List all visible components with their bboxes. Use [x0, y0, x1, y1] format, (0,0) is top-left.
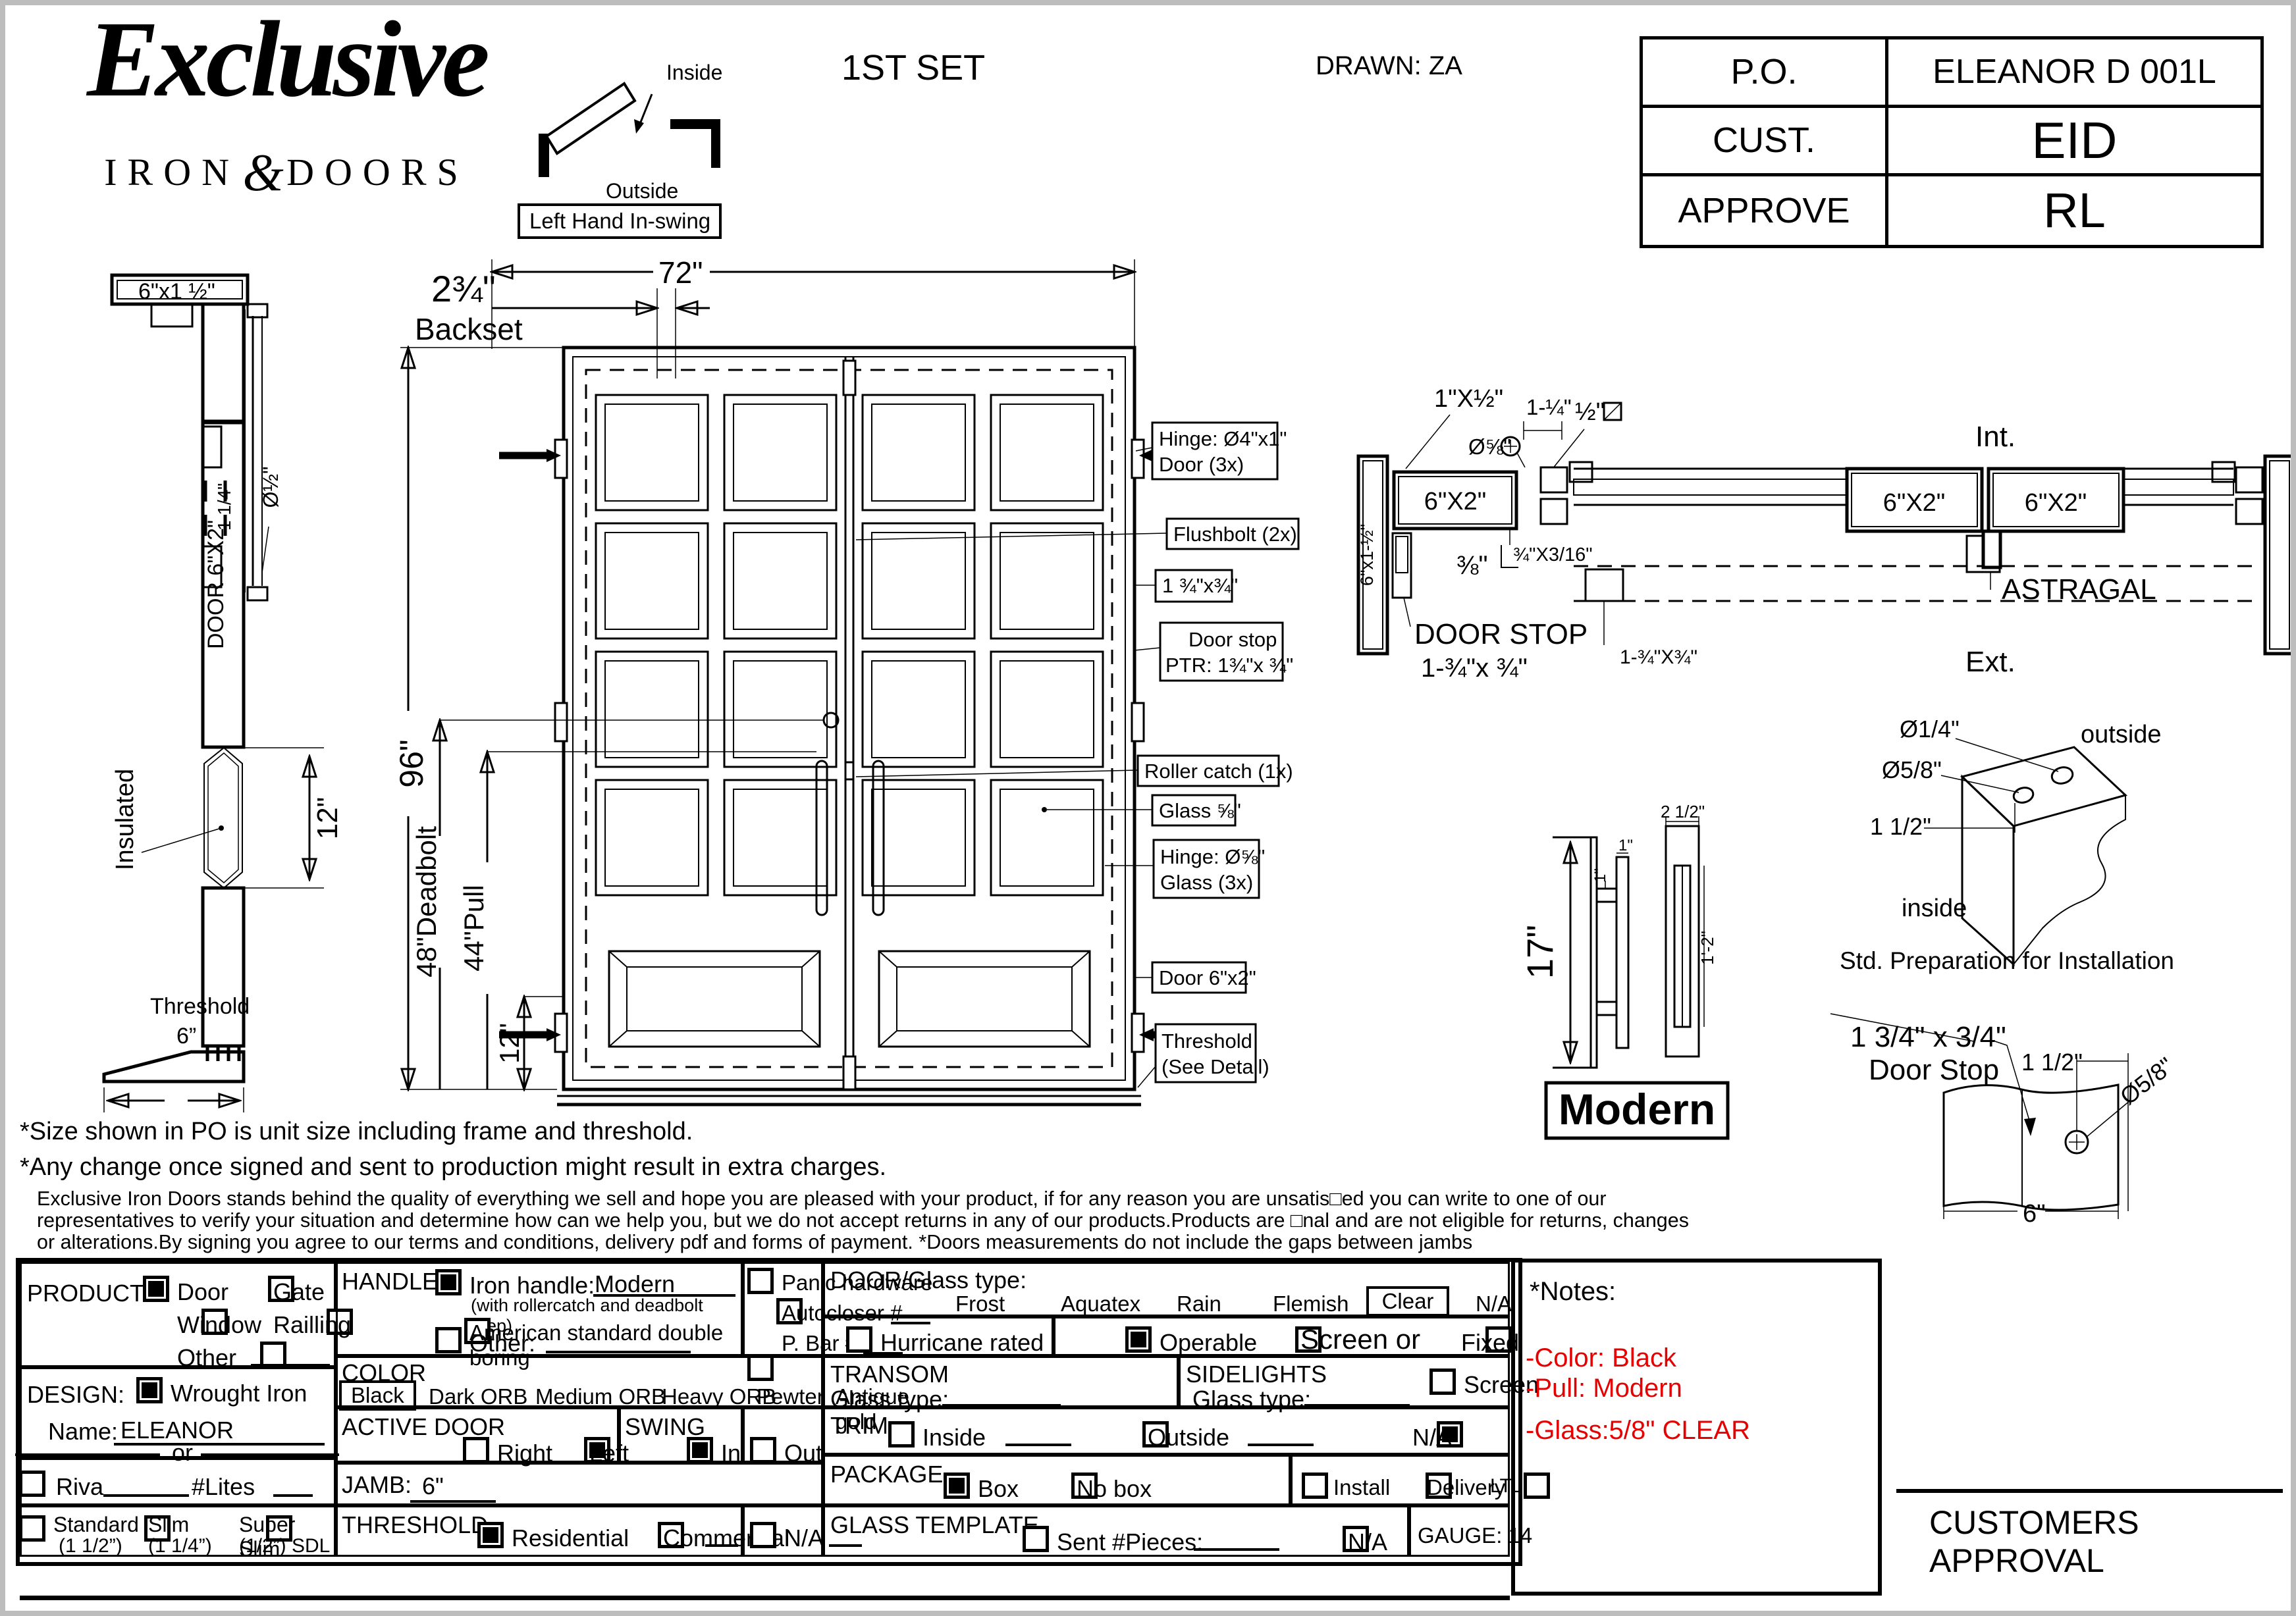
standard-sub: (1 1/2”) [59, 1535, 122, 1557]
callout-threshold-2: (See Detail) [1161, 1055, 1269, 1078]
note-para-1: Exclusive Iron Doors stands behind the q… [37, 1187, 1607, 1211]
notes-red-items: -Color: Black -Pull: Modern -Glass:5/8" … [1526, 1343, 1750, 1446]
callout-hinge-glass-1: Hinge: Ø⅝" [1160, 845, 1265, 868]
threshold-com-blank[interactable] [705, 1542, 738, 1547]
prep-caption: Std. Preparation for Installation [1840, 947, 2174, 974]
profile-glass-dia: Ø½" [259, 467, 282, 508]
checkbox-riva[interactable] [19, 1471, 45, 1497]
logo-word: Exclusive [63, 0, 510, 122]
transom-glass-blank[interactable] [942, 1401, 1061, 1407]
threshold-label: THRESHOLD [342, 1511, 488, 1539]
transom-label: TRANSOM [830, 1361, 949, 1388]
note-size: *Size shown in PO is unit size including… [20, 1118, 693, 1146]
cust-value: EID [1888, 108, 2260, 173]
slim-label: Slim [148, 1513, 189, 1537]
super-slim-sub: (1/2”) SDL [239, 1535, 330, 1557]
stopdetail-offset: 1 1/2" [2021, 1049, 2083, 1076]
prep-inside-label: inside [1902, 895, 1967, 922]
checkbox-sidelights-screen[interactable] [1429, 1368, 1456, 1395]
note-para-2: representatives to verify your situation… [37, 1209, 1689, 1232]
plan-head-dim: 6"X2" [1424, 488, 1487, 515]
design-name-blank[interactable] [114, 1440, 325, 1446]
lites-label: #Lites [192, 1473, 255, 1501]
product-other-blank[interactable] [251, 1361, 330, 1367]
install-label: Install [1333, 1475, 1390, 1500]
checkbox-handle-other[interactable] [435, 1327, 462, 1353]
notes-title: *Notes: [1530, 1277, 1616, 1307]
trim-inside-blank[interactable] [1005, 1441, 1071, 1446]
glass-na[interactable]: N/A [1476, 1291, 1512, 1316]
handle-one-b: 1" [1618, 837, 1633, 854]
company-logo: Exclusive IRON & DOORS [63, 16, 510, 194]
plan-stop-dim: 1-¾"X¾" [1620, 646, 1697, 668]
design-label: DESIGN: [27, 1381, 124, 1409]
color-black-option[interactable]: Black [339, 1380, 416, 1411]
trim-section: TRIM Inside Outside N/A [823, 1407, 1510, 1455]
trim-outside-blank[interactable] [1248, 1441, 1314, 1446]
riva-blank[interactable] [103, 1492, 189, 1497]
stopdetail-dim: 1 3/4" x 3/4" [1850, 1021, 2006, 1053]
color-medium-orb[interactable]: Medium ORB [535, 1384, 666, 1409]
plan-half: ½" [1575, 398, 1605, 426]
threshold-section: THRESHOLD Residential Commercial [336, 1505, 743, 1557]
checkbox-swing-in[interactable] [687, 1437, 713, 1463]
threshold-na-cell: N/A [743, 1505, 823, 1557]
elevation-drawing: 72" 2¾" Backset [395, 250, 1330, 1119]
design-name-label: Name: [48, 1418, 118, 1446]
trim-outside-label: Outside [1148, 1424, 1229, 1451]
callout-door-dim: Door 6"x2" [1159, 966, 1256, 989]
note-glass: -Glass:5/8" CLEAR [1526, 1415, 1750, 1446]
package-box-label: Box [978, 1475, 1019, 1503]
sidelights-label: SIDELIGHTS [1186, 1361, 1327, 1388]
profile-12-dim: 12" [311, 797, 344, 840]
handle-one-a: 1" [1591, 868, 1609, 883]
gauge-cell: GAUGE: 14 [1409, 1505, 1510, 1557]
checkbox-box[interactable] [944, 1473, 970, 1499]
handle-other-blank[interactable] [546, 1348, 691, 1353]
prep-offset: 1 1/2" [1870, 813, 1931, 840]
lites-blank[interactable] [273, 1492, 313, 1497]
po-value: ELEANOR D 001L [1888, 39, 2260, 105]
riva-section: Riva #Lites [20, 1458, 336, 1505]
profile-head-dim: 6"x1 ½" [138, 279, 215, 304]
drawn-by: DRAWN: ZA [1316, 51, 1462, 81]
glass-clear-selected[interactable]: Clear [1366, 1286, 1449, 1316]
operable-cell: Operable Screen or Fixed [1054, 1316, 1510, 1356]
handle-detail-drawing: 17" 1" 1" 2 1/2" 1'-2" Modern [1534, 810, 1765, 1172]
profile-door-label: DOOR 6"X2" [203, 520, 228, 649]
product-door-label: Door [177, 1278, 228, 1306]
product-section: PRODUCT: Door Gate Window Railling Other [20, 1262, 336, 1367]
approval-label: CUSTOMERS APPROVAL [1929, 1503, 2296, 1580]
threshold-res-label: Residential [512, 1525, 629, 1552]
doorstop-detail-drawing: 1 3/4" x 3/4" Door Stop 1 1/2" Ø5/8" 6" [1830, 1014, 2186, 1244]
plan-strip-dim: ¾"X3/16" [1513, 544, 1593, 565]
cust-label: CUST. [1643, 108, 1888, 173]
color-dark-orb[interactable]: Dark ORB [429, 1384, 527, 1409]
glass-rain[interactable]: Rain [1177, 1291, 1221, 1316]
sent-pieces-label: Sent #Pieces: [1057, 1528, 1203, 1556]
jamb-blank [410, 1498, 496, 1503]
product-label: PRODUCT: [27, 1280, 148, 1307]
checkbox-swing-out[interactable] [750, 1437, 776, 1463]
elevation-12-dim: 12" [494, 1023, 525, 1064]
plan-doorstop-dim: 1-¾"x ¾" [1421, 654, 1528, 683]
profile-threshold-label: Threshold [150, 994, 250, 1019]
plan-astragal-label: ASTRAGAL [2002, 573, 2156, 606]
color-section: COLOR Black Dark ORB Medium ORB Heavy OR… [336, 1356, 823, 1407]
plan-doorstop-label: DOOR STOP [1414, 618, 1588, 650]
hurricane-cell: Hurricane rated [823, 1316, 1054, 1356]
swing-type-label: Left Hand In-swing [529, 209, 710, 233]
delivery-section: Install Delivery LTL [1291, 1455, 1510, 1505]
glass-frost[interactable]: Frost [955, 1291, 1005, 1316]
profile-insulated-label: Insulated [111, 769, 139, 870]
or-line-right [201, 1451, 339, 1456]
sdl-section: Standard (1 1/2”) Slim (1 1/4”) Super Sl… [20, 1505, 336, 1557]
backset-value: 2¾" [431, 268, 496, 309]
approval-signature-line[interactable] [1896, 1489, 2283, 1493]
profile-threshold-width: 6” [176, 1024, 196, 1049]
logo-ampersand-icon: & [242, 144, 283, 202]
prep-outside-label: outside [2081, 721, 2162, 748]
design-wrought-label: Wrought Iron [171, 1380, 307, 1407]
package-label: PACKAGE [830, 1461, 943, 1488]
note-changes: *Any change once signed and sent to prod… [20, 1153, 886, 1182]
prep-big-hole: Ø5/8" [1882, 756, 1942, 783]
swing-inside-label: Inside [666, 61, 722, 84]
callout-hinge-door-2: Door (3x) [1159, 453, 1244, 476]
glass-flemish[interactable]: Flemish [1273, 1291, 1349, 1316]
logo-iron: IRON [104, 151, 240, 194]
checkbox-right[interactable] [463, 1437, 489, 1463]
plan-three-eighths: ⅜" [1456, 551, 1488, 580]
note-color: -Color: Black [1526, 1343, 1750, 1373]
package-nobox-label: No box [1077, 1475, 1152, 1503]
threshold-na-label: N/A [784, 1525, 824, 1552]
hurricane-label: Hurricane rated [880, 1329, 1044, 1357]
plan-ext-label: Ext. [1965, 646, 2016, 678]
transom-section: TRANSOM Glass type: [823, 1356, 1179, 1407]
checkbox-iron-handle[interactable] [435, 1269, 462, 1295]
swing-outside-label: Outside [606, 179, 678, 203]
jamb-value[interactable]: 6" [422, 1473, 444, 1500]
checkbox-door[interactable] [143, 1276, 169, 1302]
callout-flushbolt: Flushbolt (2x) [1173, 523, 1297, 546]
callout-frame-dim: 1 ¾"x¾" [1162, 574, 1238, 597]
elevation-width-dim: 72" [658, 255, 703, 290]
slim-sub: (1 1/4”) [148, 1535, 212, 1557]
product-gate-label: Gate [273, 1278, 325, 1306]
plan-one-quarter: 1-¼" [1526, 395, 1572, 419]
sidelights-section: SIDELIGHTS Glass type: Screen [1179, 1356, 1510, 1407]
active-door-section: ACTIVE DOOR Right Left [336, 1407, 619, 1463]
callout-hinge-door-1: Hinge: Ø4"x1" [1159, 427, 1287, 450]
sent-pieces-blank[interactable] [1194, 1546, 1279, 1551]
logo-doors: DOORS [286, 151, 469, 194]
note-pull: -Pull: Modern [1526, 1373, 1750, 1403]
elevation-deadbolt-dim: 48"Deadbolt [411, 826, 442, 977]
panic-section: Panic hardware Autocloser # P. Bar # [743, 1262, 823, 1356]
prep-small-hole: Ø1/4" [1900, 716, 1960, 743]
checkbox-install[interactable] [1302, 1473, 1328, 1499]
glass-template-label: GLASS TEMPLATE [830, 1511, 1039, 1539]
spec-sheet: Exclusive IRON & DOORS Inside Outside Le… [0, 0, 2296, 1616]
operable-label: Operable [1160, 1329, 1257, 1357]
stopdetail-name: Door Stop [1869, 1054, 1999, 1086]
stopdetail-width: 6" [2023, 1200, 2046, 1228]
checkbox-trim-inside[interactable] [888, 1421, 915, 1447]
po-label: P.O. [1643, 39, 1888, 105]
handle-label: HANDLE [342, 1268, 438, 1295]
handle-other-label: Other: [469, 1330, 535, 1357]
po-table: P.O. ELEANOR D 001L CUST. EID APPROVE RL [1640, 36, 2264, 248]
color-pewter[interactable]: Pewter [757, 1384, 824, 1409]
callout-rollercatch: Roller catch (1x) [1144, 760, 1293, 783]
handle-width-dim: 2 1/2" [1661, 802, 1705, 821]
glass-aquatex[interactable]: Aquatex [1061, 1291, 1140, 1316]
design-section: DESIGN: Wrought Iron Name: ELEANOR or [20, 1367, 336, 1458]
plan-leaf-left-dim: 6"X2" [1883, 489, 1946, 517]
callout-doorstop-2: PTR: 1¾"x ¾" [1165, 654, 1293, 677]
elevation-height-dim: 96" [393, 739, 430, 787]
fixed-label: Fixed [1461, 1329, 1519, 1357]
sidelights-glass-blank[interactable] [1304, 1401, 1410, 1407]
note-para-3: or alterations.By signing you agree to o… [37, 1231, 1472, 1254]
swing-out-cell: Out [743, 1407, 823, 1463]
checkbox-hurricane[interactable] [846, 1326, 872, 1353]
plan-view-drawing: 6"x1-½" 6"X2" DOOR STOP 1-¾"x ¾" ⅜" 1"X½… [1343, 369, 2296, 711]
plan-leaf-right-dim: 6"X2" [2025, 489, 2087, 517]
elevation-pull-dim: 44"Pull [458, 885, 489, 972]
trim-na-label: N/A [1412, 1424, 1452, 1451]
checkbox-wrought-iron[interactable] [136, 1377, 163, 1403]
checkbox-threshold-na[interactable] [750, 1522, 776, 1548]
trim-label: TRIM [830, 1412, 888, 1440]
side-profile-drawing: 6"x1 ½" Ø½" 1 1/4" DOOR 6"X2" Insulated … [92, 263, 402, 1126]
prep-detail-drawing: Ø1/4" Ø5/8" 1 1/2" outside inside Std. P… [1863, 711, 2153, 974]
trim-inside-label: Inside [922, 1424, 986, 1451]
jamb-section: JAMB: 6" [336, 1463, 823, 1505]
template-na-label: N/A [1348, 1528, 1387, 1556]
callout-threshold-1: Threshold [1161, 1030, 1252, 1053]
plan-jamb-dim: 6"x1-½" [1357, 524, 1377, 586]
callout-doorstop-1: Door stop [1188, 628, 1277, 651]
riva-label: Riva [56, 1473, 103, 1501]
handle-depth-dim: 1'-2" [1697, 931, 1717, 965]
glass-template-section: GLASS TEMPLATE Sent #Pieces: N/A [823, 1505, 1409, 1557]
handle-other-row: Other: [336, 1330, 743, 1356]
screen-or-label: Screen or [1300, 1324, 1420, 1355]
checkbox-sent-pieces[interactable] [1023, 1526, 1049, 1552]
checkbox-residential[interactable] [477, 1522, 504, 1548]
jamb-label: JAMB: [342, 1471, 412, 1499]
bottom-rule [20, 1596, 1510, 1600]
callout-hinge-glass-2: Glass (3x) [1160, 871, 1253, 894]
approve-label: APPROVE [1643, 176, 1888, 245]
plan-int-label: Int. [1975, 421, 2016, 453]
checkbox-operable[interactable] [1125, 1326, 1152, 1353]
set-label: 1ST SET [841, 47, 985, 88]
approve-value: RL [1888, 176, 2260, 245]
checkbox-standard[interactable] [19, 1515, 45, 1542]
plan-one-x-half: 1"X½" [1434, 385, 1503, 413]
notes-panel: *Notes: -Color: Black -Pull: Modern -Gla… [1511, 1259, 1882, 1596]
swing-section: SWING In [619, 1407, 743, 1463]
backset-label: Backset [415, 312, 523, 346]
glass-type-label: DOOR/Glass type: [830, 1266, 1027, 1294]
checkbox-panic[interactable] [747, 1268, 774, 1294]
package-section: PACKAGE Box No box [823, 1455, 1291, 1505]
handle-style-name: Modern [1559, 1085, 1715, 1134]
standard-label: Standard [53, 1513, 139, 1537]
product-window-label: Window [177, 1311, 261, 1339]
swing-diagram: Inside Outside Left Hand In-swing [514, 56, 731, 227]
callout-glass: Glass ⅝" [1159, 799, 1241, 822]
glass-type-section: DOOR/Glass type: Frost Aquatex Rain Flem… [823, 1262, 1510, 1316]
or-line-left [15, 1451, 160, 1456]
handle-height-dim: 17" [1519, 925, 1561, 979]
